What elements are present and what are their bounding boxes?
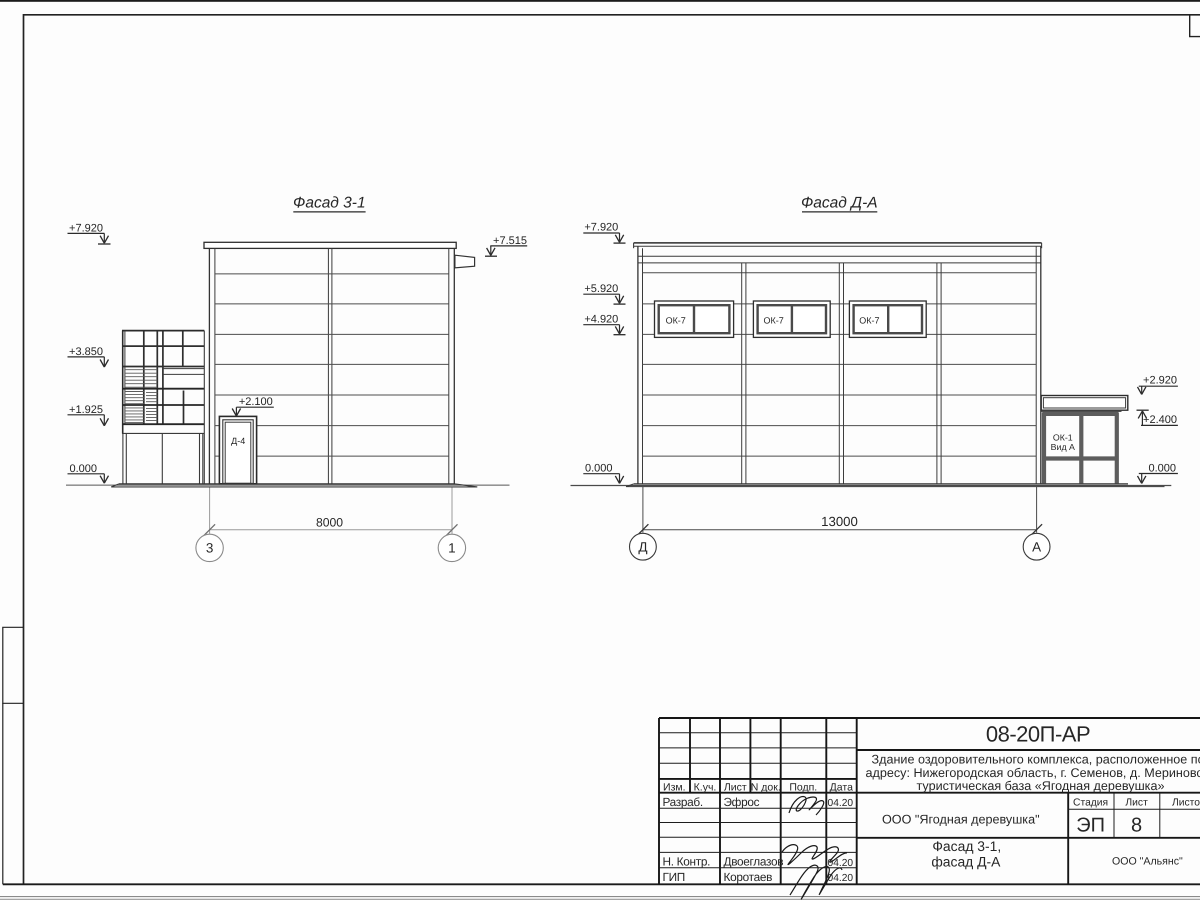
svg-text:8: 8 [1131, 815, 1142, 837]
svg-text:Эфрос: Эфрос [724, 795, 760, 809]
svg-text:1: 1 [448, 541, 456, 556]
svg-text:0.000: 0.000 [1148, 463, 1176, 475]
svg-text:ОК-7: ОК-7 [666, 316, 686, 326]
svg-text:адресу: Нижегородская область,: адресу: Нижегородская область, г. Семено… [866, 766, 1200, 780]
svg-text:Н. Контр.: Н. Контр. [663, 855, 711, 869]
svg-text:Фасад 3-1,: Фасад 3-1, [932, 838, 1001, 854]
svg-text:+2.920: +2.920 [1143, 375, 1177, 387]
svg-text:фасад Д-А: фасад Д-А [931, 853, 1001, 869]
svg-text:Фасад Д-А: Фасад Д-А [801, 195, 878, 212]
svg-text:Коротаев: Коротаев [724, 870, 773, 884]
svg-text:+5.920: +5.920 [584, 283, 618, 295]
svg-text:ЭП: ЭП [1076, 815, 1105, 837]
svg-text:Лист: Лист [1125, 798, 1148, 809]
svg-text:туристическая база «Ягодная де: туристическая база «Ягодная деревушка» [917, 779, 1165, 793]
svg-text:+7.515: +7.515 [493, 235, 527, 247]
svg-text:ОК-7: ОК-7 [859, 316, 879, 326]
svg-text:N док.: N док. [751, 781, 781, 793]
svg-text:Подп.: Подп. [789, 781, 817, 793]
svg-text:3: 3 [206, 541, 214, 556]
svg-text:К.уч.: К.уч. [694, 781, 717, 793]
svg-text:Двоеглазов: Двоеглазов [724, 855, 784, 869]
svg-text:Листов: Листов [1172, 798, 1200, 809]
svg-text:08-20П-АР: 08-20П-АР [986, 722, 1090, 747]
svg-text:0.000: 0.000 [585, 463, 613, 475]
svg-text:Лист: Лист [724, 781, 747, 793]
svg-text:+7.920: +7.920 [584, 222, 618, 234]
svg-text:Разраб.: Разраб. [663, 795, 703, 809]
svg-text:+7.920: +7.920 [69, 222, 103, 234]
svg-text:Дата: Дата [830, 781, 853, 793]
svg-text:13000: 13000 [821, 514, 858, 529]
svg-text:Здание оздоровительного компле: Здание оздоровительного комплекса, распо… [872, 753, 1200, 767]
svg-text:ООО "Альянс": ООО "Альянс" [1112, 856, 1183, 868]
svg-text:ОК-1: ОК-1 [1053, 433, 1073, 443]
svg-text:+2.100: +2.100 [239, 396, 273, 408]
svg-text:ОК-7: ОК-7 [763, 316, 783, 326]
svg-text:Вид А: Вид А [1051, 442, 1075, 452]
svg-text:А: А [1032, 540, 1041, 555]
svg-text:Д-4: Д-4 [231, 436, 245, 446]
svg-text:Изм.: Изм. [663, 781, 686, 793]
svg-text:Д: Д [638, 540, 647, 555]
svg-text:Стадия: Стадия [1073, 798, 1108, 809]
svg-text:+2.400: +2.400 [1143, 414, 1177, 426]
svg-text:+4.920: +4.920 [584, 313, 618, 325]
svg-text:8000: 8000 [316, 515, 343, 529]
svg-text:0.000: 0.000 [69, 463, 97, 475]
svg-text:04.20: 04.20 [828, 798, 854, 809]
svg-text:ГИП: ГИП [663, 870, 685, 884]
svg-text:Фасад 3-1: Фасад 3-1 [293, 195, 366, 212]
svg-text:ООО "Ягодная деревушка": ООО "Ягодная деревушка" [882, 813, 1040, 827]
